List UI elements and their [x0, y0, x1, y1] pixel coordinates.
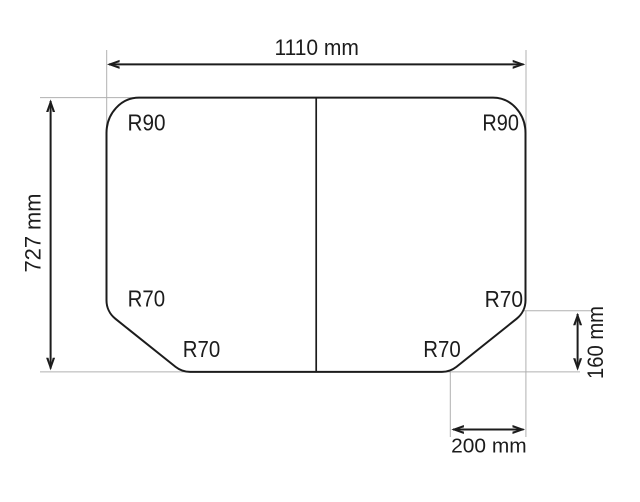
svg-text:R70: R70 [183, 336, 221, 362]
svg-text:R70: R70 [423, 336, 461, 362]
svg-text:R70: R70 [128, 286, 166, 312]
svg-text:R90: R90 [128, 110, 166, 136]
svg-text:200 mm: 200 mm [451, 436, 527, 458]
svg-text:727 mm: 727 mm [21, 194, 46, 273]
svg-text:R70: R70 [485, 286, 523, 312]
svg-text:R90: R90 [482, 110, 519, 136]
svg-text:1110 mm: 1110 mm [274, 35, 359, 60]
svg-text:160 mm: 160 mm [583, 306, 608, 379]
